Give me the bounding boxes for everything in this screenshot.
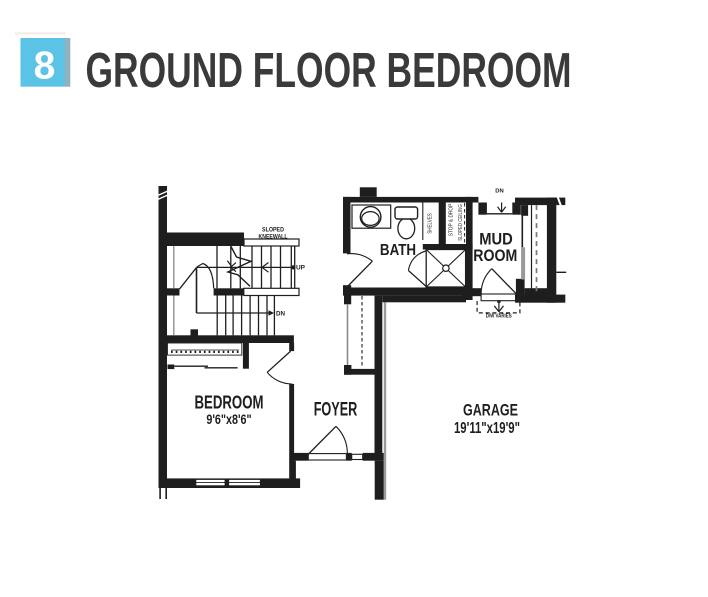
svg-text:BEDROOM: BEDROOM (195, 392, 264, 413)
svg-text:SHELVES: SHELVES (427, 213, 433, 234)
svg-text:FOYER: FOYER (314, 399, 358, 420)
svg-text:GARAGE: GARAGE (463, 401, 518, 420)
svg-text:UP: UP (296, 266, 305, 272)
svg-text:9'6"x8'6": 9'6"x8'6" (206, 412, 251, 427)
svg-text:SLOPED CEILING: SLOPED CEILING (458, 204, 464, 241)
svg-text:STOP & DROP: STOP & DROP (449, 203, 455, 236)
svg-text:ROOM: ROOM (473, 246, 517, 265)
svg-text:DN: DN (495, 188, 504, 194)
svg-text:BATH: BATH (380, 242, 416, 259)
svg-text:KNEEWALL: KNEEWALL (259, 234, 288, 241)
svg-text:SLOPED: SLOPED (262, 227, 284, 234)
svg-text:19'11"x19'9": 19'11"x19'9" (454, 420, 520, 437)
svg-text:DN: DN (276, 312, 285, 318)
svg-text:8: 8 (34, 44, 56, 87)
svg-text:D/W VARIES: D/W VARIES (486, 314, 512, 320)
svg-text:GROUND FLOOR BEDROOM: GROUND FLOOR BEDROOM (86, 43, 572, 98)
